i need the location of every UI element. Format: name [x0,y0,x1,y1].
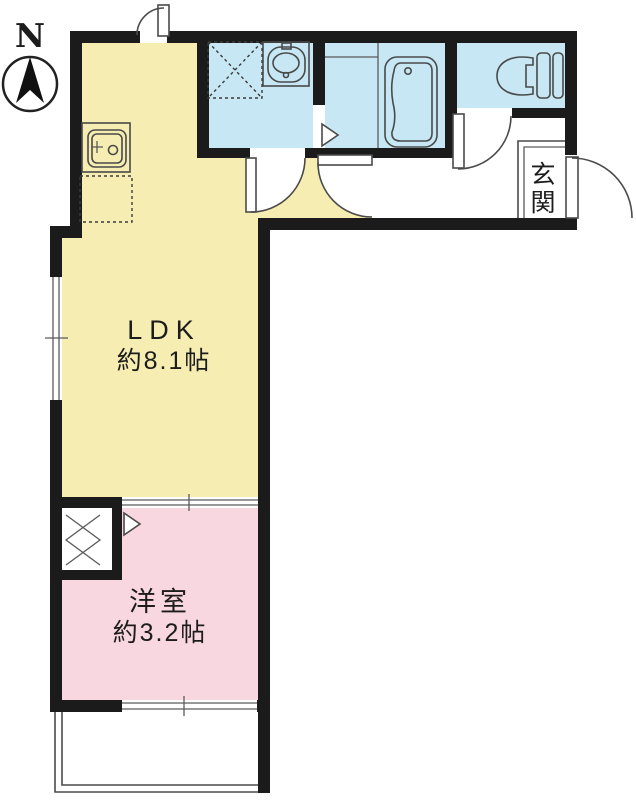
north-label: N [13,16,47,55]
balcony [55,712,258,792]
wall-closet-bottom [62,570,112,580]
wall-kitchen-washroom [197,43,209,158]
balcony-inner-rail [62,712,258,785]
ldk-room-size: 約8.1帖 [68,346,260,377]
entrance-door-leaf [566,157,578,218]
western-room-name: 洋室 [64,586,256,618]
sliding-door-gap [122,497,258,508]
wall-right-column [258,218,270,793]
wall-south-left [50,700,122,712]
floor-plan: N LDK 約8.1帖 洋室 約3.2帖 玄関 [0,0,636,800]
wall-right [565,31,577,155]
wall-top [167,31,577,43]
toilet-door [453,114,511,169]
entrance-door [566,157,632,218]
ldk-floor-upper [82,218,258,238]
toilet-door-arc [458,116,511,169]
compass [3,57,57,111]
hall-door-leaf [318,155,372,165]
wall-washroom-bottom-left [197,148,250,158]
ldk-kitchen-floor [82,43,197,158]
wall-closet-right [112,497,122,580]
toilet-floor [457,43,565,108]
window-south-gap [122,700,257,712]
washroom-door-leaf [246,158,256,212]
western-room-size: 約3.2帖 [64,618,256,649]
floor-plan-drawing [0,0,636,800]
ldk-label: LDK 約8.1帖 [68,314,260,377]
western-room-label: 洋室 約3.2帖 [64,586,256,649]
entrance-door-arc [572,158,632,218]
back-door-leaf [158,5,169,36]
toilet-door-leaf [453,114,464,168]
ldk-room-name: LDK [68,314,260,346]
wall-left-a [50,226,62,277]
wall-left-upper [70,31,82,238]
wall-washroom-bath [313,43,325,105]
entrance-label: 玄関 [527,156,555,222]
wall-toilet-bottom [512,108,565,118]
wall-top-left [75,31,140,43]
balcony-outer-rail [55,712,258,792]
wall-left-b [50,400,62,712]
wall-ldk-western [50,497,122,508]
kitchen-back-door [137,5,169,36]
